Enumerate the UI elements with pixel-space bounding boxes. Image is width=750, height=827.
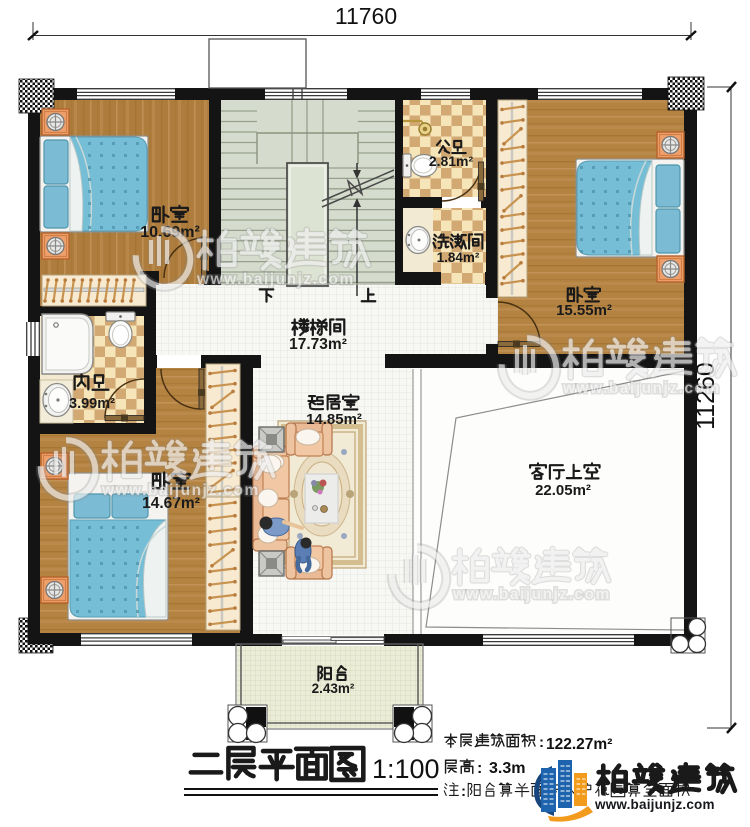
svg-text:2.43m²: 2.43m² — [312, 681, 355, 696]
svg-text:www.baijunjz.com: www.baijunjz.com — [196, 271, 355, 288]
svg-text:15.55m²: 15.55m² — [556, 302, 612, 319]
svg-text:3.99m²: 3.99m² — [69, 396, 115, 412]
svg-text::: : — [477, 760, 482, 777]
svg-text::: : — [461, 783, 466, 800]
svg-text:www.baijunjz.com: www.baijunjz.com — [594, 797, 715, 812]
svg-text:www.baijunjz.com: www.baijunjz.com — [562, 380, 721, 397]
svg-text:1:100: 1:100 — [372, 754, 440, 784]
svg-text:122.27m²: 122.27m² — [546, 736, 612, 753]
svg-text:11760: 11760 — [335, 3, 397, 29]
svg-text:14.85m²: 14.85m² — [306, 411, 362, 428]
svg-text:1.84m²: 1.84m² — [437, 250, 480, 265]
svg-text::: : — [539, 734, 544, 751]
svg-text:3.3m: 3.3m — [489, 760, 525, 777]
svg-text:www.baijunjz.com: www.baijunjz.com — [101, 482, 260, 499]
svg-text:22.05m²: 22.05m² — [535, 482, 591, 499]
svg-text:www.baijunjz.com: www.baijunjz.com — [452, 586, 611, 603]
svg-text:17.73m²: 17.73m² — [289, 336, 347, 353]
svg-text:2.81m²: 2.81m² — [429, 153, 474, 169]
